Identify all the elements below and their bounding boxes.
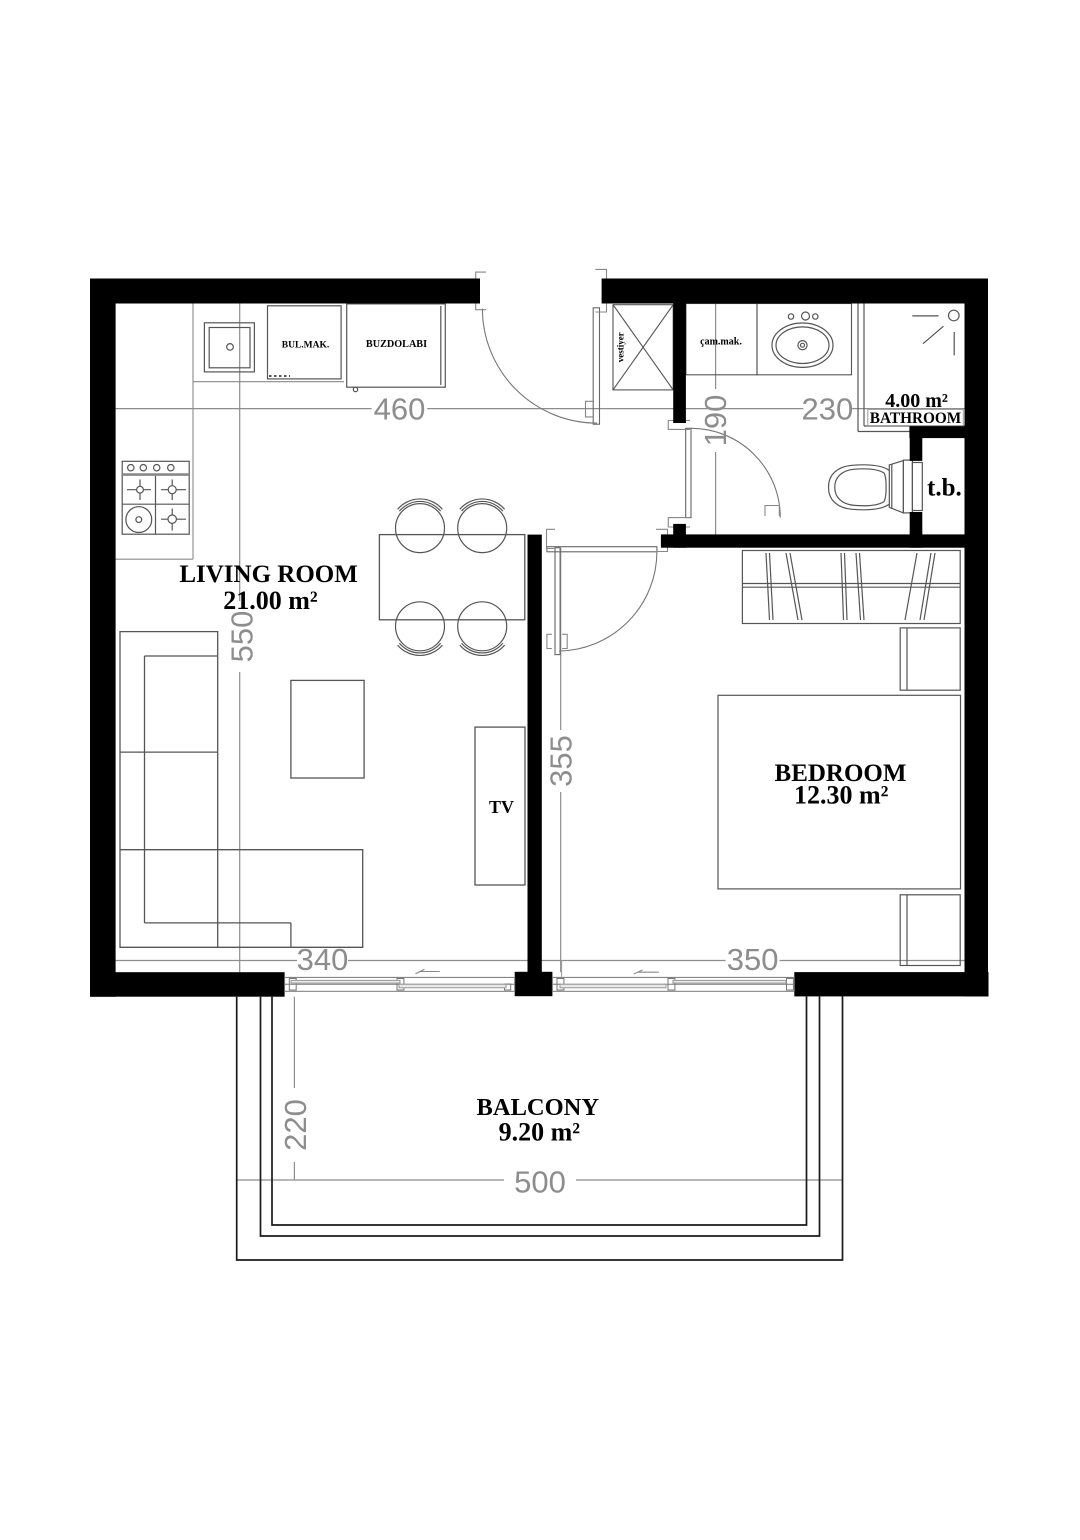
- svg-text:460: 460: [374, 392, 426, 427]
- svg-text:220: 220: [278, 1099, 313, 1151]
- svg-text:355: 355: [544, 735, 579, 787]
- svg-text:t.b.: t.b.: [927, 475, 962, 502]
- svg-text:BATHROOM: BATHROOM: [870, 410, 962, 427]
- svg-text:21.00 m²: 21.00 m²: [223, 586, 318, 615]
- svg-text:çam.mak.: çam.mak.: [700, 337, 742, 348]
- svg-text:12.30 m²: 12.30 m²: [794, 780, 889, 809]
- svg-text:340: 340: [297, 942, 349, 977]
- svg-text:550: 550: [225, 611, 260, 663]
- svg-text:230: 230: [802, 392, 854, 427]
- svg-text:9.20 m²: 9.20 m²: [499, 1118, 581, 1147]
- svg-text:350: 350: [727, 942, 779, 977]
- svg-text:BUZDOLABI: BUZDOLABI: [366, 339, 427, 350]
- svg-text:vestiyer: vestiyer: [616, 332, 626, 362]
- svg-text:LIVING ROOM: LIVING ROOM: [179, 561, 357, 588]
- svg-text:500: 500: [514, 1165, 566, 1200]
- svg-text:TV: TV: [489, 797, 514, 817]
- svg-text:190: 190: [698, 395, 733, 447]
- svg-text:BUL.MAK.: BUL.MAK.: [282, 341, 330, 351]
